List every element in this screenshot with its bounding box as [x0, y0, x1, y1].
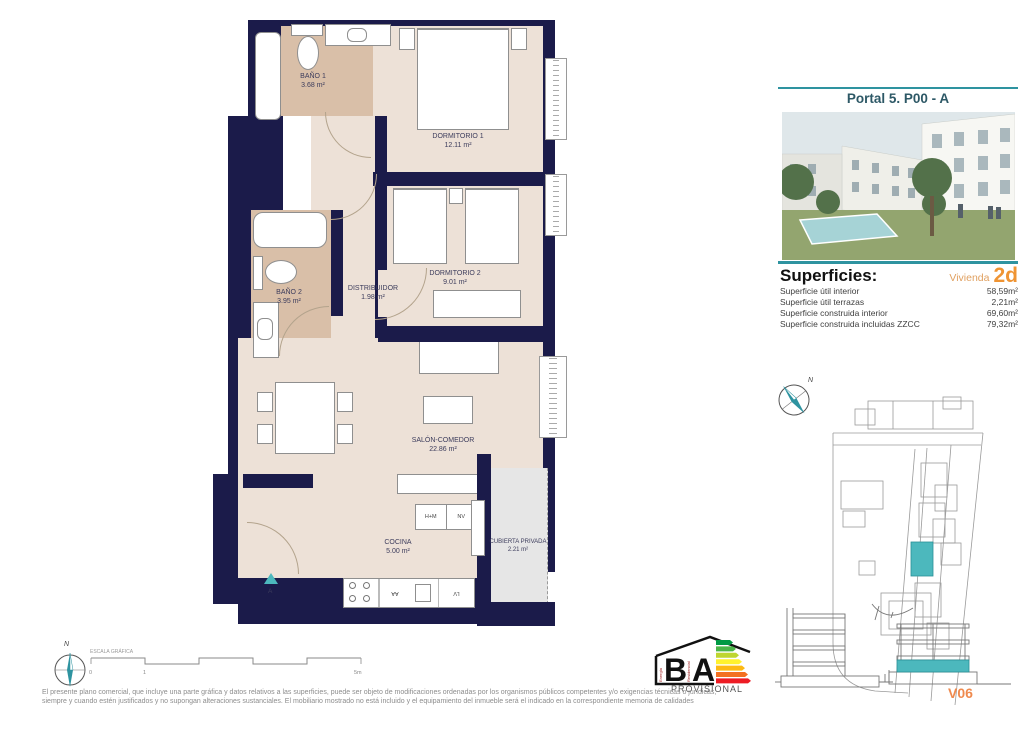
- kitchen-sink: [410, 579, 439, 607]
- room-name: SALÓN-COMEDOR: [393, 436, 493, 445]
- compass-north-label: N: [808, 377, 814, 384]
- room-label-terrace: CUBIERTA PRIVADA 2.21 m²: [473, 538, 563, 554]
- vivienda-label: Vivienda: [949, 272, 989, 286]
- compass-footer: N: [48, 636, 92, 692]
- room-name: CUBIERTA PRIVADA: [473, 538, 563, 546]
- closet-shaft: [283, 116, 311, 214]
- logo-vertical-word-right: Residencial: [686, 661, 691, 682]
- page-title: Portal 5. P00 - A: [778, 91, 1018, 106]
- compass-site: N: [770, 370, 822, 422]
- energy-certificate-logo: B A Energía Residencial: [652, 632, 756, 686]
- wall-hall-bedrooms-upper: [375, 116, 387, 270]
- room-area: 12.11 m²: [408, 141, 508, 150]
- room-label-bedroom1: DORMITORIO 1 12.11 m²: [408, 132, 508, 151]
- legal-disclaimer: El presente plano comercial, que incluye…: [42, 688, 747, 706]
- toilet-cistern-bath2: [253, 256, 263, 290]
- version-tag: V06: [948, 685, 973, 701]
- toilet-bath2: [265, 260, 297, 284]
- apartment-floor-plan: H+M NV AA LV A BAÑO 1 3.68 m² DORMITORIO…: [213, 16, 585, 630]
- superficie-row: Superficie útil terrazas 2,21m²: [780, 297, 1018, 308]
- room-name: BAÑO 1: [268, 72, 358, 81]
- building-render-image: [782, 112, 1015, 260]
- sink-bowl-bath2: [257, 318, 273, 340]
- room-label-bath1: BAÑO 1 3.68 m²: [268, 72, 358, 91]
- wall-entrance-top: [243, 474, 313, 488]
- coffee-table: [423, 396, 473, 424]
- floor-private-terrace: [485, 468, 548, 604]
- scale-bar: ESCALA GRÁFICA 0 1 5m: [88, 646, 368, 678]
- superficie-row: Superficie construida incluidas ZZCC 79,…: [780, 319, 1018, 330]
- bed-single: [393, 188, 447, 264]
- scale-tick-1: 1: [143, 670, 146, 676]
- scale-tick-0: 0: [89, 670, 92, 676]
- room-area: 22.86 m²: [393, 445, 493, 454]
- room-area: 3.95 m²: [255, 297, 323, 306]
- superficie-label: Superficie construida interior: [780, 308, 888, 319]
- superficie-row: Superficie útil interior 58,59m²: [780, 286, 1018, 297]
- superficies-heading: Superficies:: [780, 266, 877, 286]
- wall-between-bedrooms: [373, 172, 547, 186]
- room-label-livingroom: SALÓN-COMEDOR 22.86 m²: [393, 436, 493, 455]
- toilet-cistern-bath1: [291, 24, 323, 36]
- superficie-value: 2,21m²: [992, 297, 1018, 308]
- superficie-value: 69,60m²: [987, 308, 1018, 319]
- kitchen-counter: AA LV: [343, 578, 475, 608]
- bed-single: [465, 188, 519, 264]
- sink-bowl-bath1: [347, 28, 367, 42]
- window-shutter-ticks: [553, 60, 559, 138]
- superficie-value: 79,32m²: [987, 319, 1018, 330]
- room-name: DISTRIBUIDOR: [325, 284, 421, 293]
- dishwasher-unit: LV: [439, 579, 474, 607]
- header-rule-top: [778, 87, 1018, 89]
- hob: [344, 579, 379, 607]
- superficies-panel: Superficies: Vivienda 2d Superficie útil…: [780, 266, 1018, 330]
- compass-north-label: N: [64, 641, 70, 648]
- room-area: 2.21 m²: [473, 546, 563, 554]
- toilet-bath1: [297, 36, 319, 70]
- washer-unit: AA: [379, 579, 410, 607]
- highlighted-unit: [911, 542, 933, 576]
- room-area: 5.00 m²: [348, 547, 448, 556]
- chair: [257, 392, 273, 412]
- room-area: 1.98 m²: [325, 293, 421, 302]
- logo-letter-a: A: [692, 652, 715, 686]
- building-sections: [775, 602, 1015, 702]
- floor-plan-sheet: { "header": { "title": "Portal 5. P00 - …: [0, 0, 1024, 732]
- scale-bar-label: ESCALA GRÁFICA: [90, 648, 134, 655]
- superficie-label: Superficie útil interior: [780, 286, 859, 297]
- nightstand: [511, 28, 527, 50]
- room-name: COCINA: [348, 538, 448, 547]
- vivienda-code: 2d: [993, 267, 1018, 286]
- chair: [337, 392, 353, 412]
- wall-terrace-bottom: [477, 602, 555, 626]
- window-bedroom1: [545, 58, 567, 140]
- bathtub: [253, 212, 327, 248]
- wardrobe: [433, 290, 521, 318]
- wall-bedroom2-bottom: [378, 326, 543, 342]
- kitchen-tall-units: H+M NV: [415, 504, 477, 530]
- entrance-marker-triangle: [264, 573, 278, 584]
- entrance-letter: A: [268, 588, 272, 595]
- window-bedroom2: [545, 174, 567, 236]
- chair: [337, 424, 353, 444]
- window-shutter-ticks: [549, 358, 557, 436]
- room-label-hall: DISTRIBUIDOR 1.98 m²: [325, 284, 421, 303]
- disclaimer-line-2: siempre y cuando estén justificados y no…: [42, 697, 747, 706]
- dining-table: [275, 382, 335, 454]
- nightstand: [399, 28, 415, 50]
- nightstand: [449, 188, 463, 204]
- room-label-bath2: BAÑO 2 3.95 m²: [255, 288, 323, 307]
- superficie-row: Superficie construida interior 69,60m²: [780, 308, 1018, 319]
- scale-tick-5m: 5m: [354, 670, 362, 676]
- superficie-label: Superficie construida incluidas ZZCC: [780, 319, 920, 330]
- room-area: 3.68 m²: [268, 81, 358, 90]
- highlighted-floor-section: [897, 660, 969, 672]
- chair: [257, 424, 273, 444]
- logo-vertical-word-left: Energía: [658, 667, 663, 682]
- window-livingroom: [539, 356, 567, 438]
- superficie-value: 58,59m²: [987, 286, 1018, 297]
- logo-letter-b: B: [664, 652, 687, 686]
- room-name: DORMITORIO 1: [408, 132, 508, 141]
- disclaimer-line-1: El presente plano comercial, que incluye…: [42, 688, 747, 697]
- room-label-kitchen: COCINA 5.00 m²: [348, 538, 448, 557]
- superficie-label: Superficie útil terrazas: [780, 297, 864, 308]
- bed-double: [417, 28, 509, 130]
- room-name: DORMITORIO 2: [405, 269, 505, 278]
- oven-microwave-unit: H+M: [416, 505, 447, 529]
- room-name: BAÑO 2: [255, 288, 323, 297]
- window-shutter-ticks: [553, 176, 559, 234]
- header-rule-superficies: [778, 261, 1018, 264]
